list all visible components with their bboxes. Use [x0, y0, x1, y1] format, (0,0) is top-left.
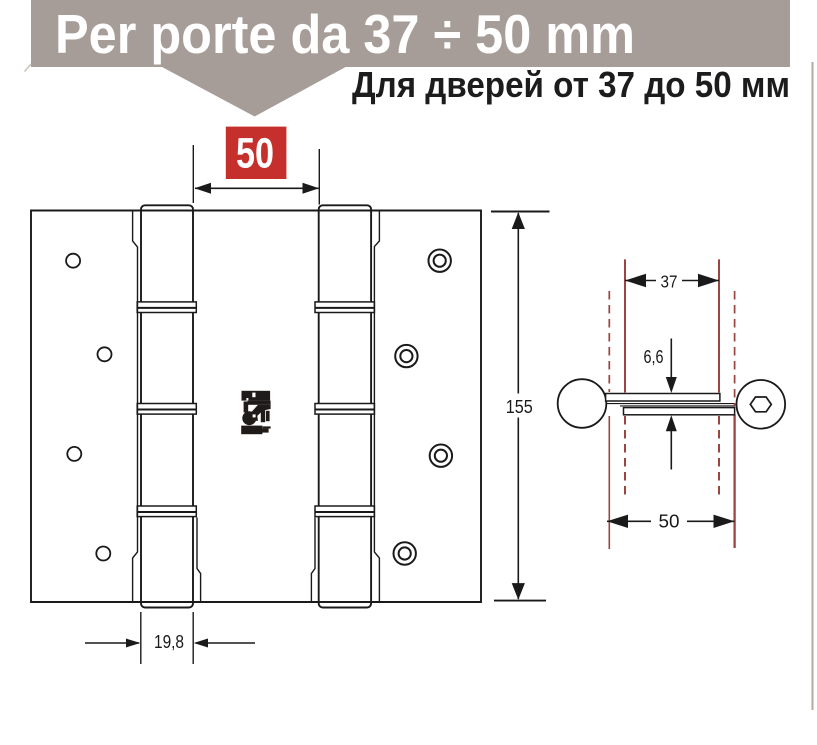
svg-text:37: 37 — [661, 272, 678, 292]
svg-text:6,6: 6,6 — [644, 346, 664, 367]
svg-text:155: 155 — [506, 396, 533, 417]
svg-text:50: 50 — [659, 511, 680, 532]
svg-text:Для дверей от 37 до 50 мм: Для дверей от 37 до 50 мм — [352, 64, 790, 105]
svg-text:19,8: 19,8 — [154, 632, 184, 652]
svg-text:50: 50 — [236, 130, 274, 178]
svg-text:Per porte da 37 ÷ 50 mm: Per porte da 37 ÷ 50 mm — [55, 3, 635, 65]
